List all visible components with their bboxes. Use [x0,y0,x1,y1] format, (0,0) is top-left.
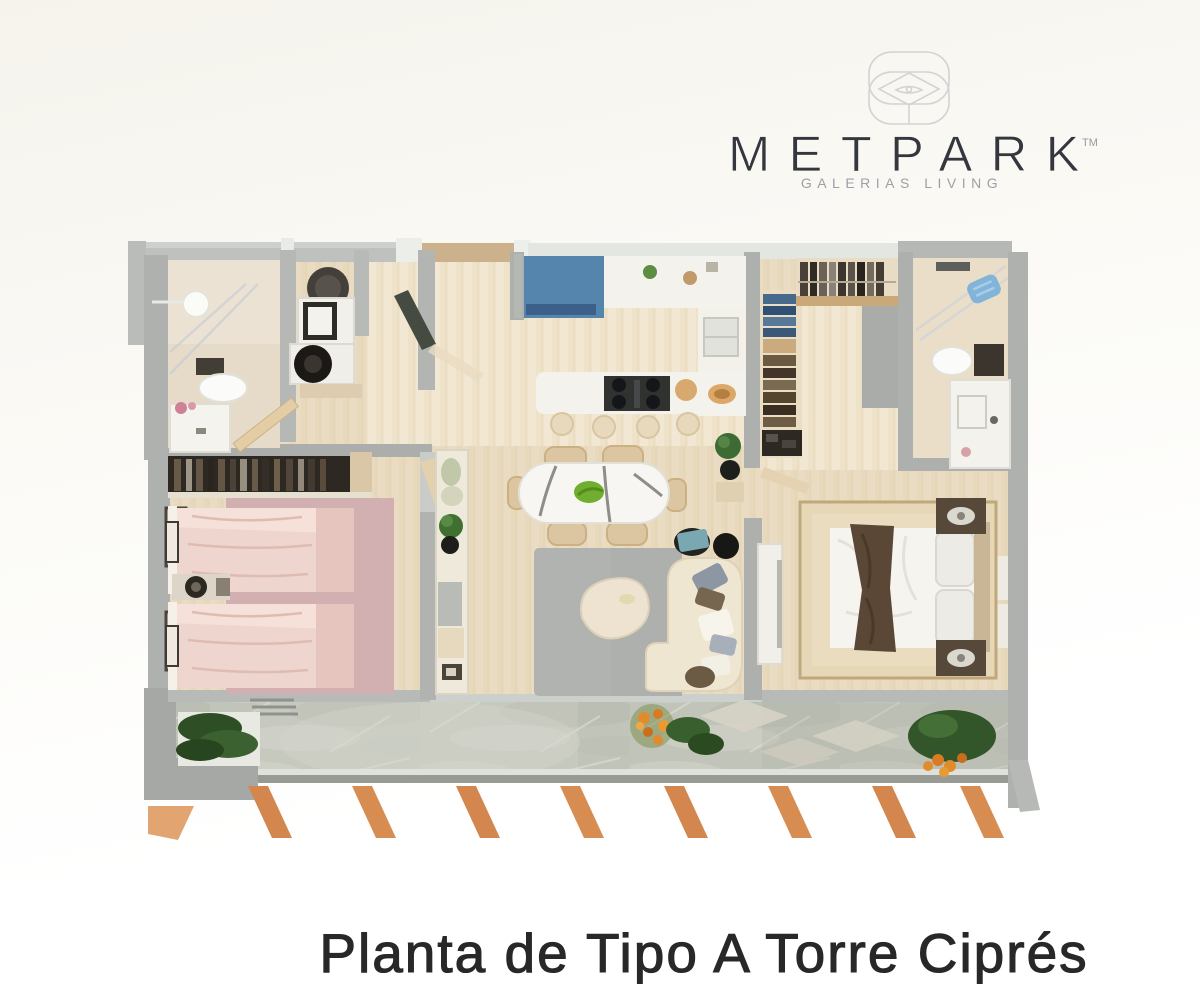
svg-text:METPARK: METPARK [728,125,1098,182]
svg-text:GALERIAS LIVING: GALERIAS LIVING [801,175,1003,191]
svg-text:TM: TM [1082,137,1098,149]
svg-text:Planta de Tipo A Torre Ciprés: Planta de Tipo A Torre Ciprés [319,922,1088,984]
